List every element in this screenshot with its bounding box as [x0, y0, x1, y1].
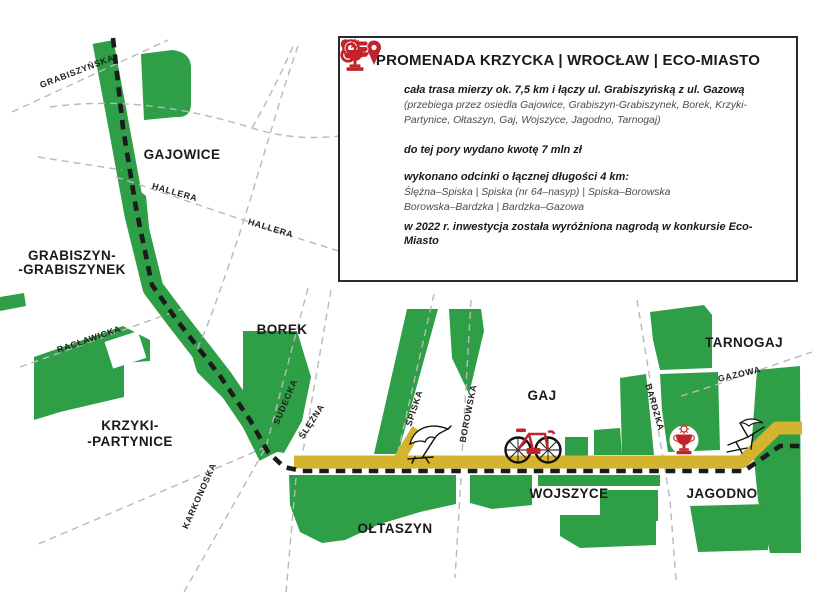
district-label-tarnogaj: TARNOGAJ: [705, 335, 783, 350]
sections-text: wykonano odcinki o łącznej długości 4 km…: [404, 170, 780, 184]
info-item-award: w 2022 r. inwestycja została wyróżniona …: [340, 220, 796, 249]
route-pins-icon: [352, 83, 404, 128]
panel-title: PROMENADA KRZYCKA | WROCŁAW | ECO-MIASTO: [340, 52, 796, 69]
sections-list-line1: Ślężna–Spiska | Spiska (nr 64–nasyp) | S…: [404, 186, 780, 201]
sections-list-line2: Borowska–Bardzka | Bardzka–Gazowa: [404, 201, 780, 216]
street-label-hallera-1: HALLERA: [151, 181, 199, 204]
street-label-gazowa: GAZOWA: [717, 364, 762, 384]
measuring-tape-icon: [352, 170, 404, 215]
district-label-gajowice: GAJOWICE: [144, 147, 221, 162]
district-label-krzyki-1: KRZYKI-: [101, 418, 159, 433]
info-item-sections: wykonano odcinki o łącznej długości 4 km…: [340, 170, 796, 215]
street-label-hallera-2: HALLERA: [247, 216, 295, 239]
district-label-grabiszyn-1: GRABISZYN-: [28, 248, 116, 263]
info-panel: PROMENADA KRZYCKA | WROCŁAW | ECO-MIASTO…: [338, 36, 798, 282]
info-item-budget: do tej pory wydano kwotę 7 mln zł: [340, 143, 796, 157]
route-districts-note: (przebiega przez osiedla Gajowice, Grabi…: [404, 99, 780, 128]
district-label-wojszyce: WOJSZYCE: [530, 486, 609, 501]
award-text: w 2022 r. inwestycja została wyróżniona …: [404, 220, 780, 249]
district-label-gaj: GAJ: [528, 388, 557, 403]
district-label-krzyki-2: -PARTYNICE: [87, 434, 173, 449]
route-length-text: cała trasa mierzy ok. 7,5 km i łączy ul.…: [404, 83, 780, 97]
promenada-krzycka-infographic: GAJOWICE GRABISZYN- -GRABISZYNEK BOREK K…: [0, 0, 840, 592]
district-label-borek: BOREK: [257, 322, 308, 337]
district-label-oltaszyn: OŁTASZYN: [358, 521, 433, 536]
budget-text: do tej pory wydano kwotę 7 mln zł: [404, 143, 780, 157]
district-label-jagodno: JAGODNO: [686, 486, 757, 501]
street-label-karkonoska: KARKONOSKA: [180, 461, 218, 530]
street-label-borowska: BOROWSKA: [458, 384, 479, 444]
district-label-grabiszyn-2: -GRABISZYNEK: [18, 262, 126, 277]
info-item-route-length: cała trasa mierzy ok. 7,5 km i łączy ul.…: [340, 83, 796, 128]
